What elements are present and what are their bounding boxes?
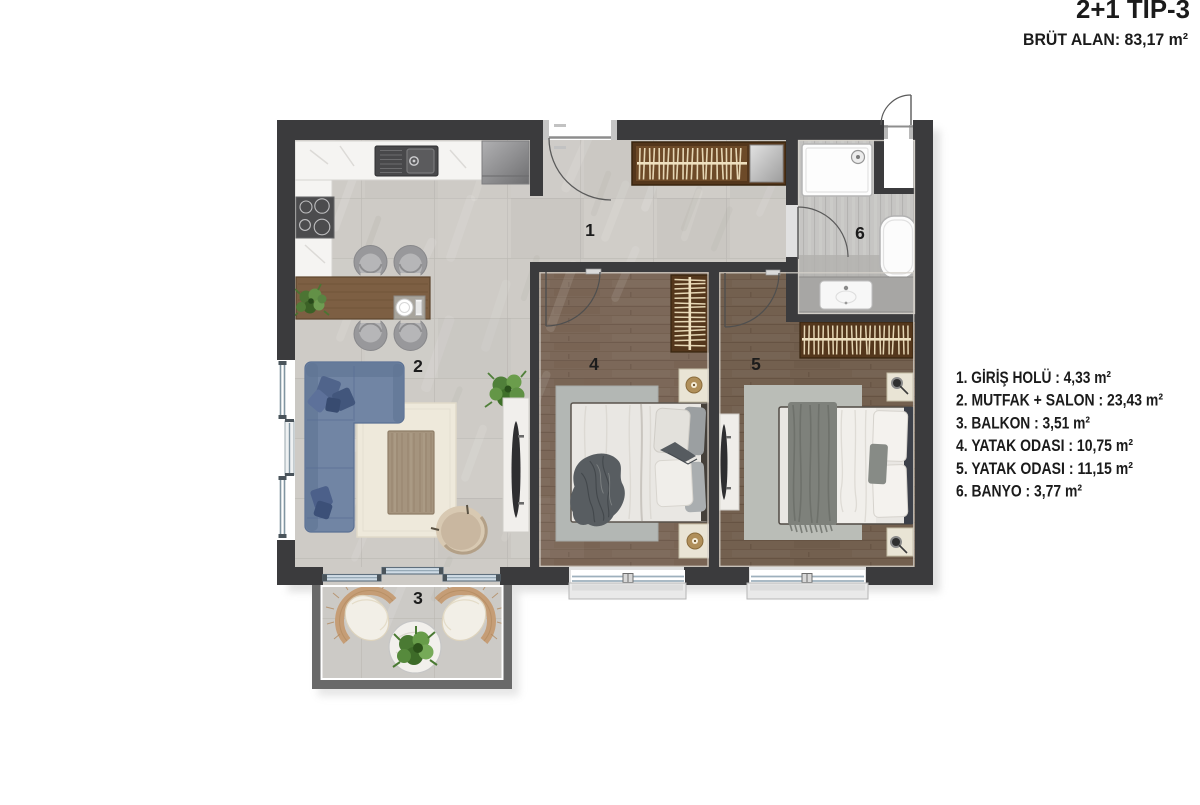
svg-text:BRÜT ALAN: 83,17 m²: BRÜT ALAN: 83,17 m² (1023, 30, 1188, 49)
svg-text:2+1 TİP-3: 2+1 TİP-3 (1076, 0, 1190, 24)
svg-text:3. BALKON : 3,51 m²: 3. BALKON : 3,51 m² (956, 414, 1090, 432)
svg-text:2. MUTFAK + SALON : 23,43 m²: 2. MUTFAK + SALON : 23,43 m² (956, 392, 1163, 410)
svg-text:4: 4 (589, 354, 599, 374)
svg-text:6: 6 (855, 223, 865, 243)
svg-text:1: 1 (585, 220, 595, 240)
svg-text:5. YATAK ODASI : 11,15 m²: 5. YATAK ODASI : 11,15 m² (956, 460, 1133, 478)
svg-text:2: 2 (413, 356, 423, 376)
svg-text:3: 3 (413, 588, 423, 608)
svg-text:6. BANYO : 3,77 m²: 6. BANYO : 3,77 m² (956, 483, 1082, 501)
svg-text:4. YATAK ODASI : 10,75 m²: 4. YATAK ODASI : 10,75 m² (956, 437, 1133, 455)
svg-text:1. GİRİŞ HOLÜ : 4,33 m²: 1. GİRİŞ HOLÜ : 4,33 m² (956, 368, 1111, 387)
svg-text:5: 5 (751, 354, 761, 374)
